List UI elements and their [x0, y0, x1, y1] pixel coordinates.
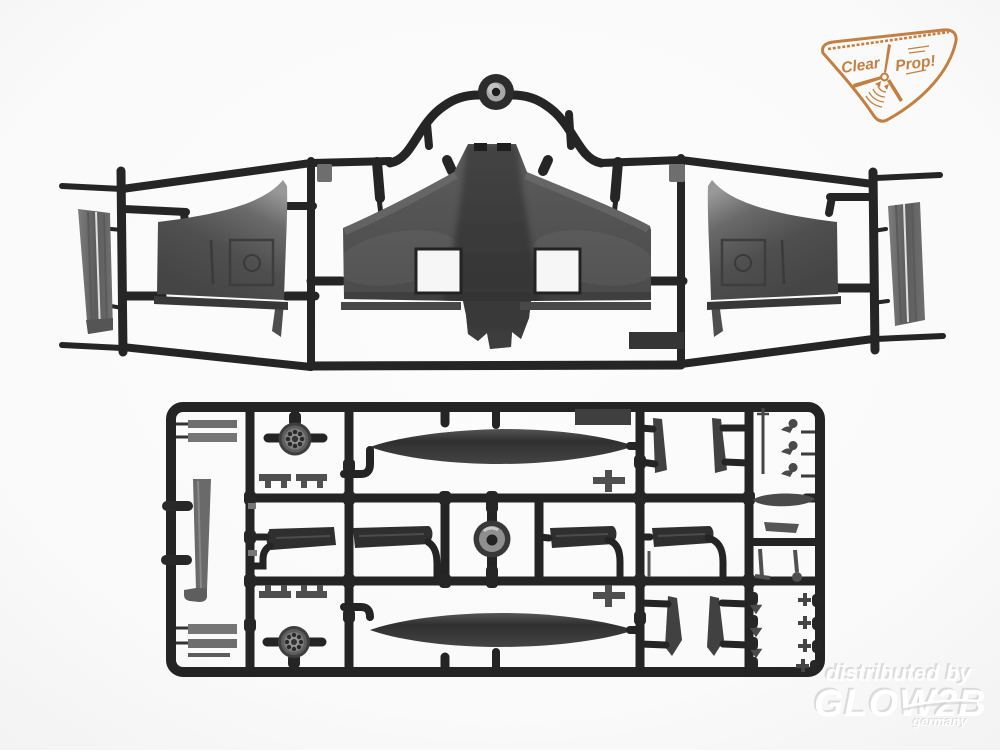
svg-text:germany: germany: [912, 714, 968, 729]
